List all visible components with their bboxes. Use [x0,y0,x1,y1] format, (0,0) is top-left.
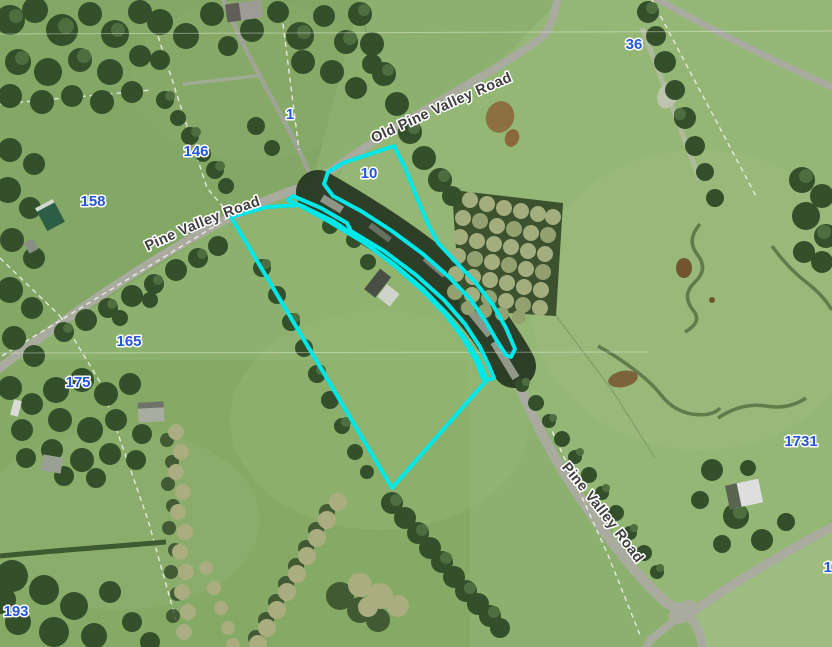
parcel-label-146: 146 [183,143,208,160]
parcel-label-1731: 1731 [784,433,817,450]
parcel-label-17-clipped: 17 [824,559,832,576]
parcel-label-10: 10 [361,165,378,182]
parcel-label-165: 165 [116,333,141,350]
parcel-label-193: 193 [3,603,28,620]
parcel-label-175: 175 [65,374,90,391]
parcel-label-1: 1 [286,106,294,123]
parcel-label-158: 158 [80,193,105,210]
map-canvas[interactable]: Pine Valley Road Old Pine Valley Road Pi… [0,0,832,647]
parcel-label-36: 36 [626,36,643,53]
map-viewport[interactable]: Pine Valley Road Old Pine Valley Road Pi… [0,0,832,647]
tree-grove [447,190,563,324]
